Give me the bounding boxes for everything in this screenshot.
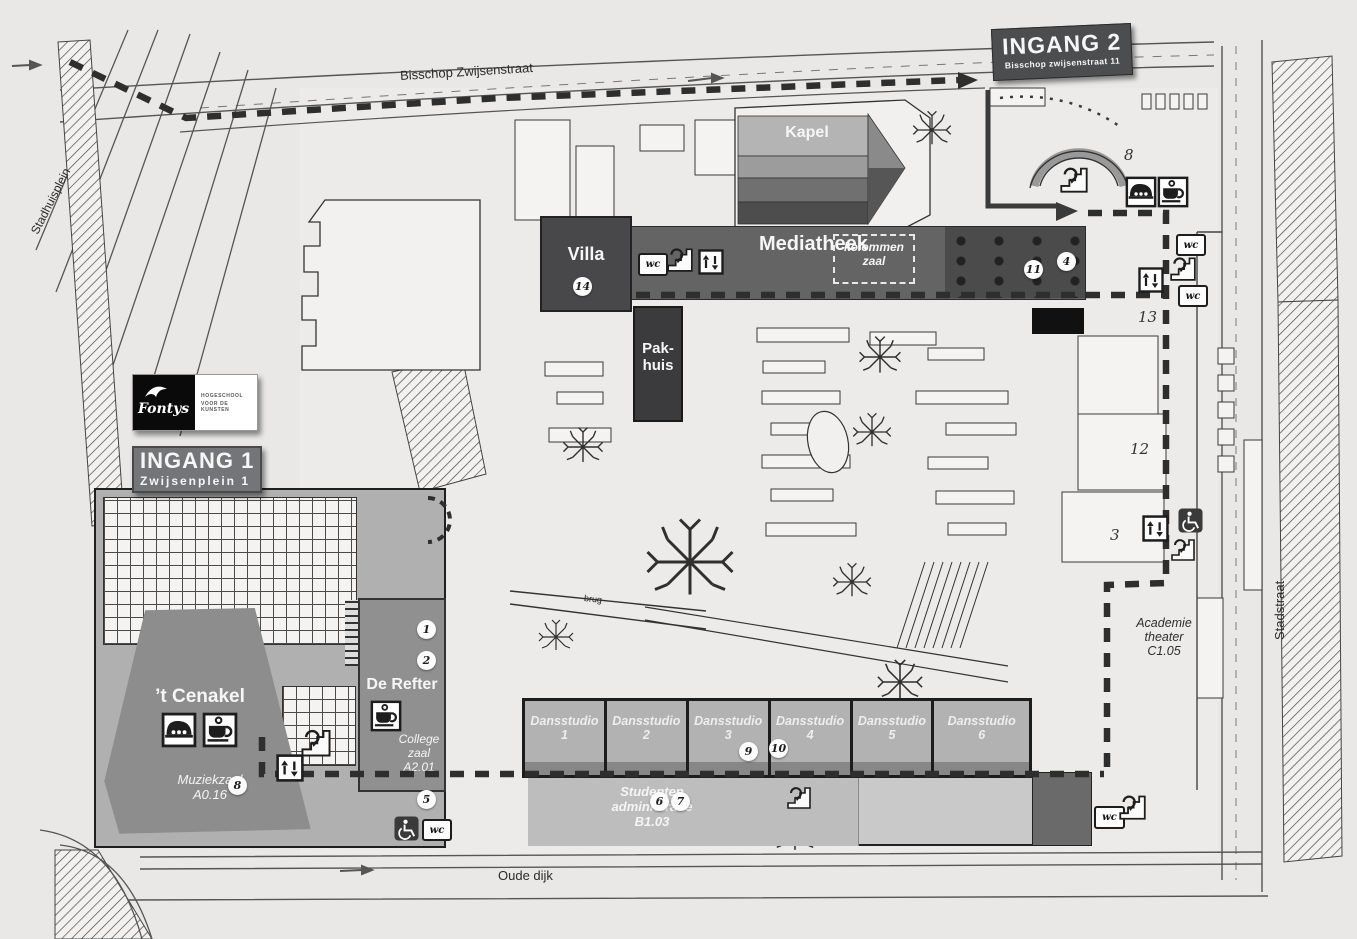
- kolommen-zaal-box: kolommen zaal: [833, 234, 915, 284]
- muziekzaal-name: Muziekzaal: [150, 772, 270, 787]
- kolommen-line1: kolommen: [835, 240, 913, 254]
- dansstudio-6: Dansstudio 6: [934, 701, 1029, 775]
- coffee-icon: [202, 712, 238, 748]
- marker-4: 4: [1057, 252, 1076, 271]
- muziekzaal-room: A0.16: [150, 787, 270, 802]
- marker-5: 5: [417, 790, 436, 809]
- dansstudio-4: Dansstudio 4: [771, 701, 853, 775]
- street-label-stadstraat: Stadstraat: [1272, 581, 1287, 640]
- dansstudio-3-label: Dansstudio: [689, 714, 768, 728]
- college-zaal-label: College zaal A2.01: [394, 732, 444, 774]
- college-room: A2.01: [394, 760, 444, 774]
- wc-icon: wc: [1176, 234, 1206, 256]
- pakhuis-label-line1: Pak-: [635, 340, 681, 357]
- dansstudio-4-label: Dansstudio: [771, 714, 850, 728]
- dansstudio-2-label: Dansstudio: [607, 714, 686, 728]
- logo-tagline2: VOOR DE KUNSTEN: [201, 401, 257, 413]
- area-number-12: 12: [1130, 440, 1149, 458]
- marker-6: 6: [650, 792, 669, 811]
- dansstudio-row: Dansstudio 1 Dansstudio 2 Dansstudio 3 D…: [522, 698, 1032, 778]
- elevator-icon: [698, 248, 724, 276]
- stairs-icon: [1168, 254, 1198, 282]
- wc-icon: wc: [638, 253, 668, 276]
- villa-label: Villa: [542, 244, 630, 265]
- muziekzaal-label: Muziekzaal A0.16: [150, 772, 270, 802]
- spiral-stairs-icon: [300, 726, 332, 758]
- pakhuis-label-line2: huis: [635, 357, 681, 374]
- wc-label: wc: [646, 259, 661, 270]
- logo-taglines: HOGESCHOOL VOOR DE KUNSTEN: [195, 375, 257, 430]
- marker-2: 2: [417, 651, 436, 670]
- wheelchair-icon: [1178, 508, 1203, 533]
- de-refter-label: De Refter: [360, 676, 444, 694]
- wc-label: wc: [1184, 240, 1199, 251]
- marker-9: 9: [739, 742, 758, 761]
- coffee-icon: [1156, 176, 1190, 208]
- piano-icon: [160, 712, 198, 748]
- dansstudio-5-label: Dansstudio: [853, 714, 932, 728]
- elevator-icon: [1142, 514, 1169, 543]
- building-studenten-administratie: Studenten administratie B1.03: [528, 776, 1036, 846]
- wc-icon: wc: [1178, 285, 1208, 307]
- college-line1: College: [394, 732, 444, 746]
- elevator-icon: [276, 752, 304, 784]
- dansstudio-1-number: 1: [525, 728, 604, 742]
- academie-line2: theater: [1118, 630, 1210, 644]
- wc-label: wc: [1186, 291, 1201, 302]
- dansstudio-3: Dansstudio 3: [689, 701, 771, 775]
- entrance-1-banner: INGANG 1 Zwijsenplein 1: [132, 446, 262, 493]
- dansstudio-2-number: 2: [607, 728, 686, 742]
- stairs-strip: [345, 600, 358, 666]
- dansstudio-2: Dansstudio 2: [607, 701, 689, 775]
- dansstudio-1: Dansstudio 1: [525, 701, 607, 775]
- campus-map: Mediatheek kolommen zaal wc Villa 14 Pak…: [0, 0, 1357, 939]
- logo-tagline1: HOGESCHOOL: [201, 393, 257, 399]
- area-number-13: 13: [1138, 308, 1157, 326]
- academie-theater-label: Academie theater C1.05: [1118, 616, 1210, 658]
- dark-block: [1032, 772, 1092, 846]
- marker-10: 10: [769, 739, 788, 758]
- logo-brand: Fontys: [138, 401, 189, 417]
- fontys-logo: Fontys HOGESCHOOL VOOR DE KUNSTEN: [132, 374, 258, 431]
- fontys-bird-icon: [143, 381, 169, 399]
- building-pakhuis: Pak- huis: [633, 306, 683, 422]
- cenakel-label: ’t Cenakel: [130, 686, 270, 708]
- studenten-room: B1.03: [552, 814, 752, 829]
- area-number-3: 3: [1110, 526, 1120, 544]
- marker-8: 8: [228, 776, 247, 795]
- entrance-2-banner: INGANG 2 Bisschop zwijsenstraat 11: [991, 23, 1133, 81]
- entrance-1-title: INGANG 1: [140, 448, 260, 474]
- academie-room: C1.05: [1118, 644, 1210, 658]
- elevator-icon: [1138, 266, 1164, 294]
- wc-label: wc: [1102, 812, 1117, 823]
- dansstudio-1-label: Dansstudio: [525, 714, 604, 728]
- wc-label: wc: [430, 825, 445, 836]
- marker-14: 14: [573, 277, 592, 296]
- bridge-label: brug: [584, 593, 603, 605]
- stairs-icon: [1170, 536, 1196, 562]
- dansstudio-6-number: 6: [934, 728, 1029, 742]
- logo-mark: Fontys: [133, 375, 195, 430]
- piano-icon: [1124, 176, 1158, 208]
- stairs-icon: [666, 245, 694, 273]
- marker-11: 11: [1024, 260, 1043, 279]
- stairs-icon: [1058, 164, 1090, 194]
- building-mediatheek: Mediatheek kolommen zaal: [628, 226, 1086, 300]
- street-label-oude-dijk: Oude dijk: [498, 868, 553, 883]
- stairs-icon: [786, 784, 812, 810]
- building-villa: Villa: [540, 216, 632, 312]
- dansstudio-6-label: Dansstudio: [934, 714, 1029, 728]
- entrance-1-subtitle: Zwijsenplein 1: [140, 474, 260, 488]
- stairs-icon: [1118, 792, 1147, 821]
- coffee-icon: [370, 700, 402, 732]
- kolommen-line2: zaal: [835, 254, 913, 268]
- wheelchair-icon: [394, 816, 419, 841]
- academie-line1: Academie: [1118, 616, 1210, 630]
- dansstudio-5-number: 5: [853, 728, 932, 742]
- marker-7: 7: [671, 792, 690, 811]
- area-number-8: 8: [1124, 146, 1134, 164]
- kapel-label: Kapel: [762, 124, 852, 142]
- college-line2: zaal: [394, 746, 444, 760]
- dansstudio-5: Dansstudio 5: [853, 701, 935, 775]
- dansstudio-3-number: 3: [689, 728, 768, 742]
- wc-icon: wc: [422, 819, 452, 841]
- marker-1: 1: [417, 620, 436, 639]
